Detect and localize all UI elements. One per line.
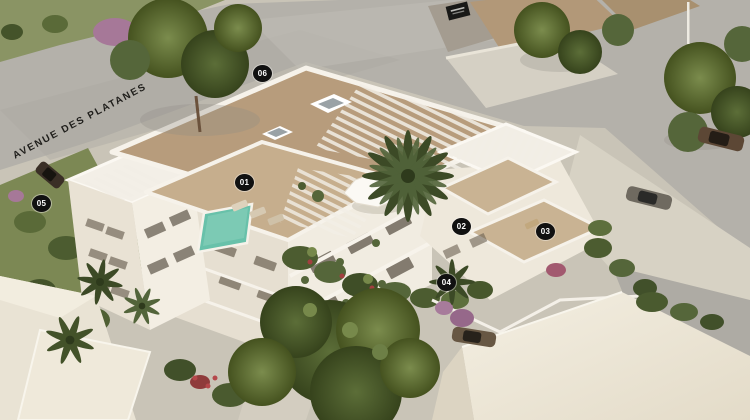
badge-05[interactable]: 05 — [32, 195, 51, 212]
badge-04[interactable]: 04 — [437, 274, 456, 291]
badge-06[interactable]: 06 — [253, 65, 272, 82]
terrace-plant — [312, 190, 324, 202]
scene-illustration — [0, 0, 750, 420]
badge-01[interactable]: 01 — [235, 174, 254, 191]
pole — [687, 2, 690, 44]
aerial-rendering: AVENUE DES PLATANES 01 02 03 04 05 06 — [0, 0, 750, 420]
badge-03[interactable]: 03 — [536, 223, 555, 240]
terrace-plant — [298, 182, 306, 190]
badge-02[interactable]: 02 — [452, 218, 471, 235]
